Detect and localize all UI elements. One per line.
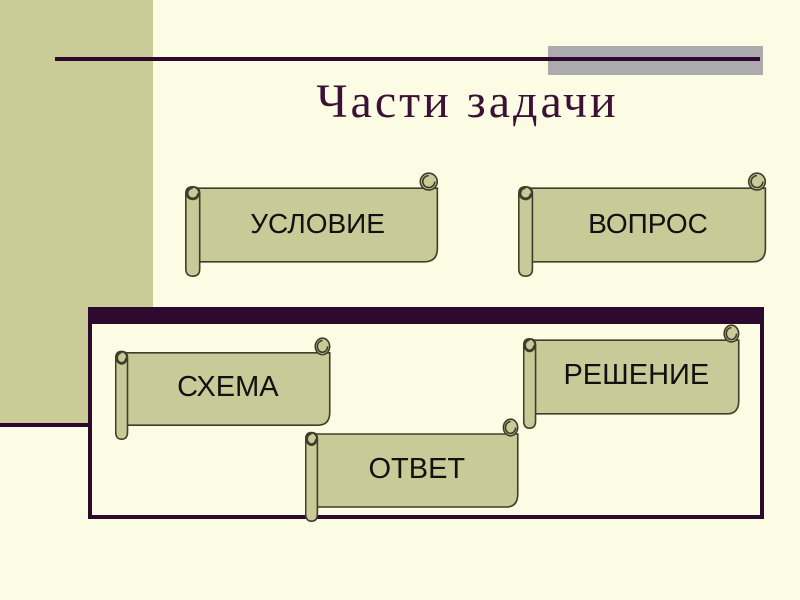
scroll-label-uslovie: УСЛОВИЕ <box>200 187 435 262</box>
scroll-banner-uslovie: УСЛОВИЕ <box>185 172 440 277</box>
scroll-label-reshenie: РЕШЕНИЕ <box>536 339 737 414</box>
slide-title: Части задачи <box>135 76 800 129</box>
title-rule-line <box>55 57 760 61</box>
scroll-banner-vopros: ВОПРОС <box>518 172 768 277</box>
scroll-label-vopros: ВОПРОС <box>533 187 763 262</box>
scroll-label-shema: СХЕМА <box>128 351 328 424</box>
scroll-label-otvet: ОТВЕТ <box>318 433 516 507</box>
scroll-banner-shema: СХЕМА <box>115 337 332 440</box>
scroll-banner-otvet: ОТВЕТ <box>305 418 520 522</box>
slide-background: Части задачи УСЛОВИЕ ВОПРОС СХЕМА РЕШЕНИ… <box>0 0 800 600</box>
scroll-banner-reshenie: РЕШЕНИЕ <box>523 324 741 429</box>
